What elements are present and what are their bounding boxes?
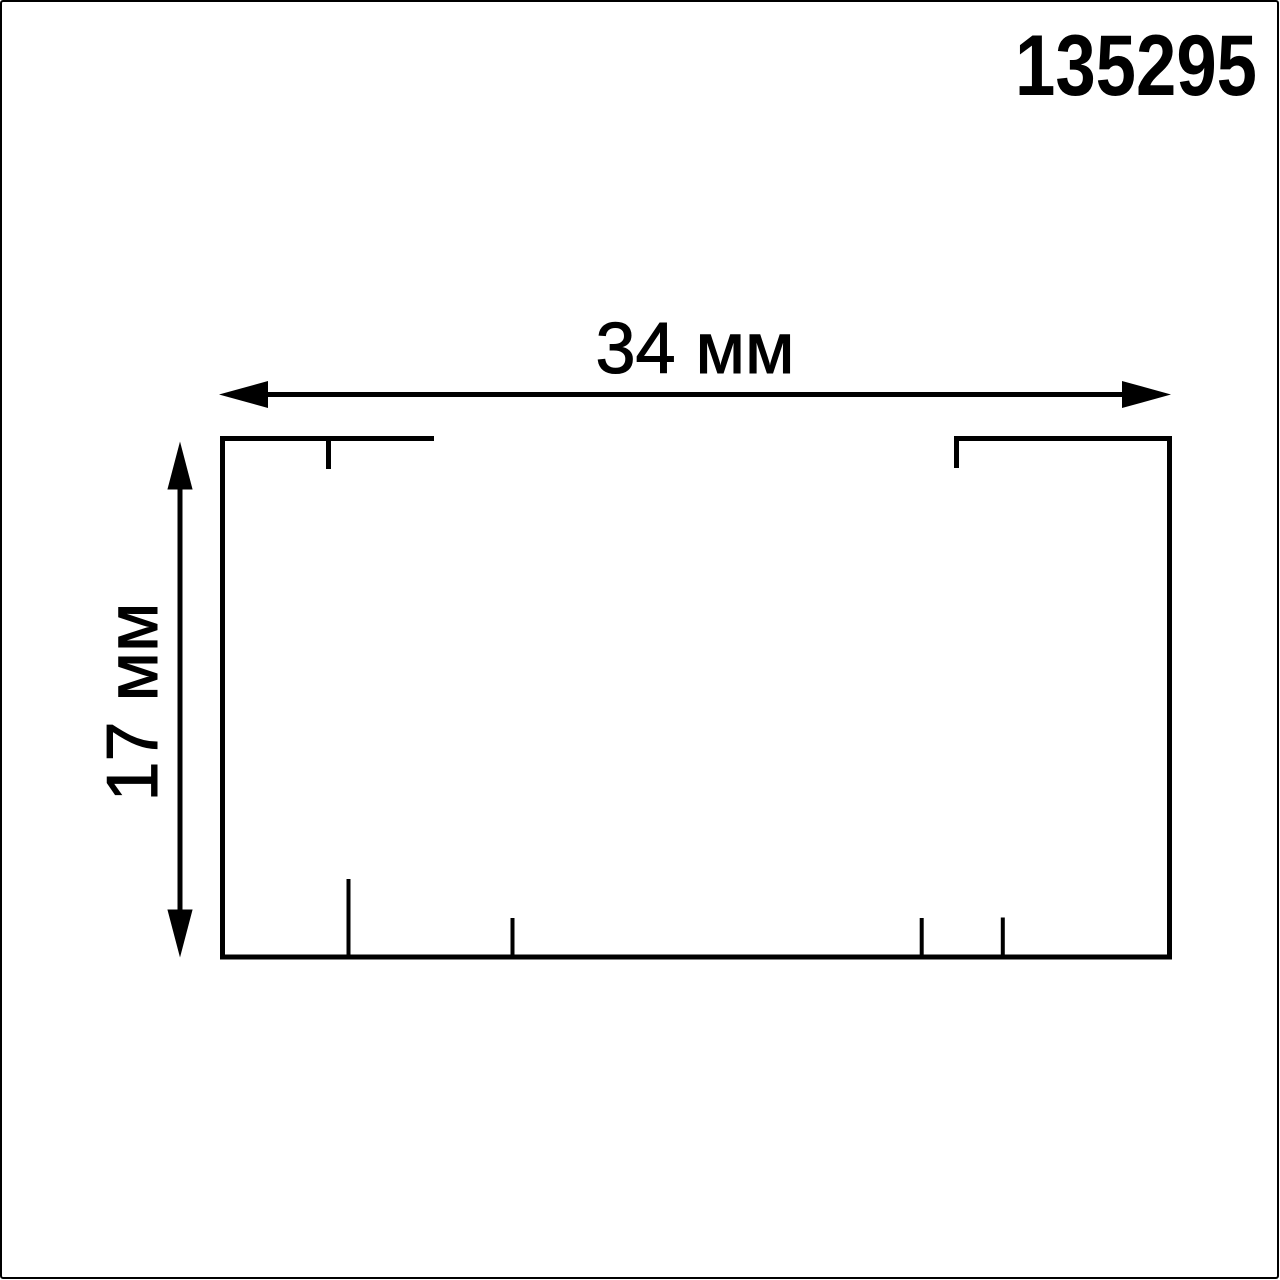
svg-text:34 мм: 34 мм — [595, 309, 794, 389]
svg-text:17 мм: 17 мм — [93, 602, 173, 801]
svg-text:135295: 135295 — [1015, 18, 1257, 114]
